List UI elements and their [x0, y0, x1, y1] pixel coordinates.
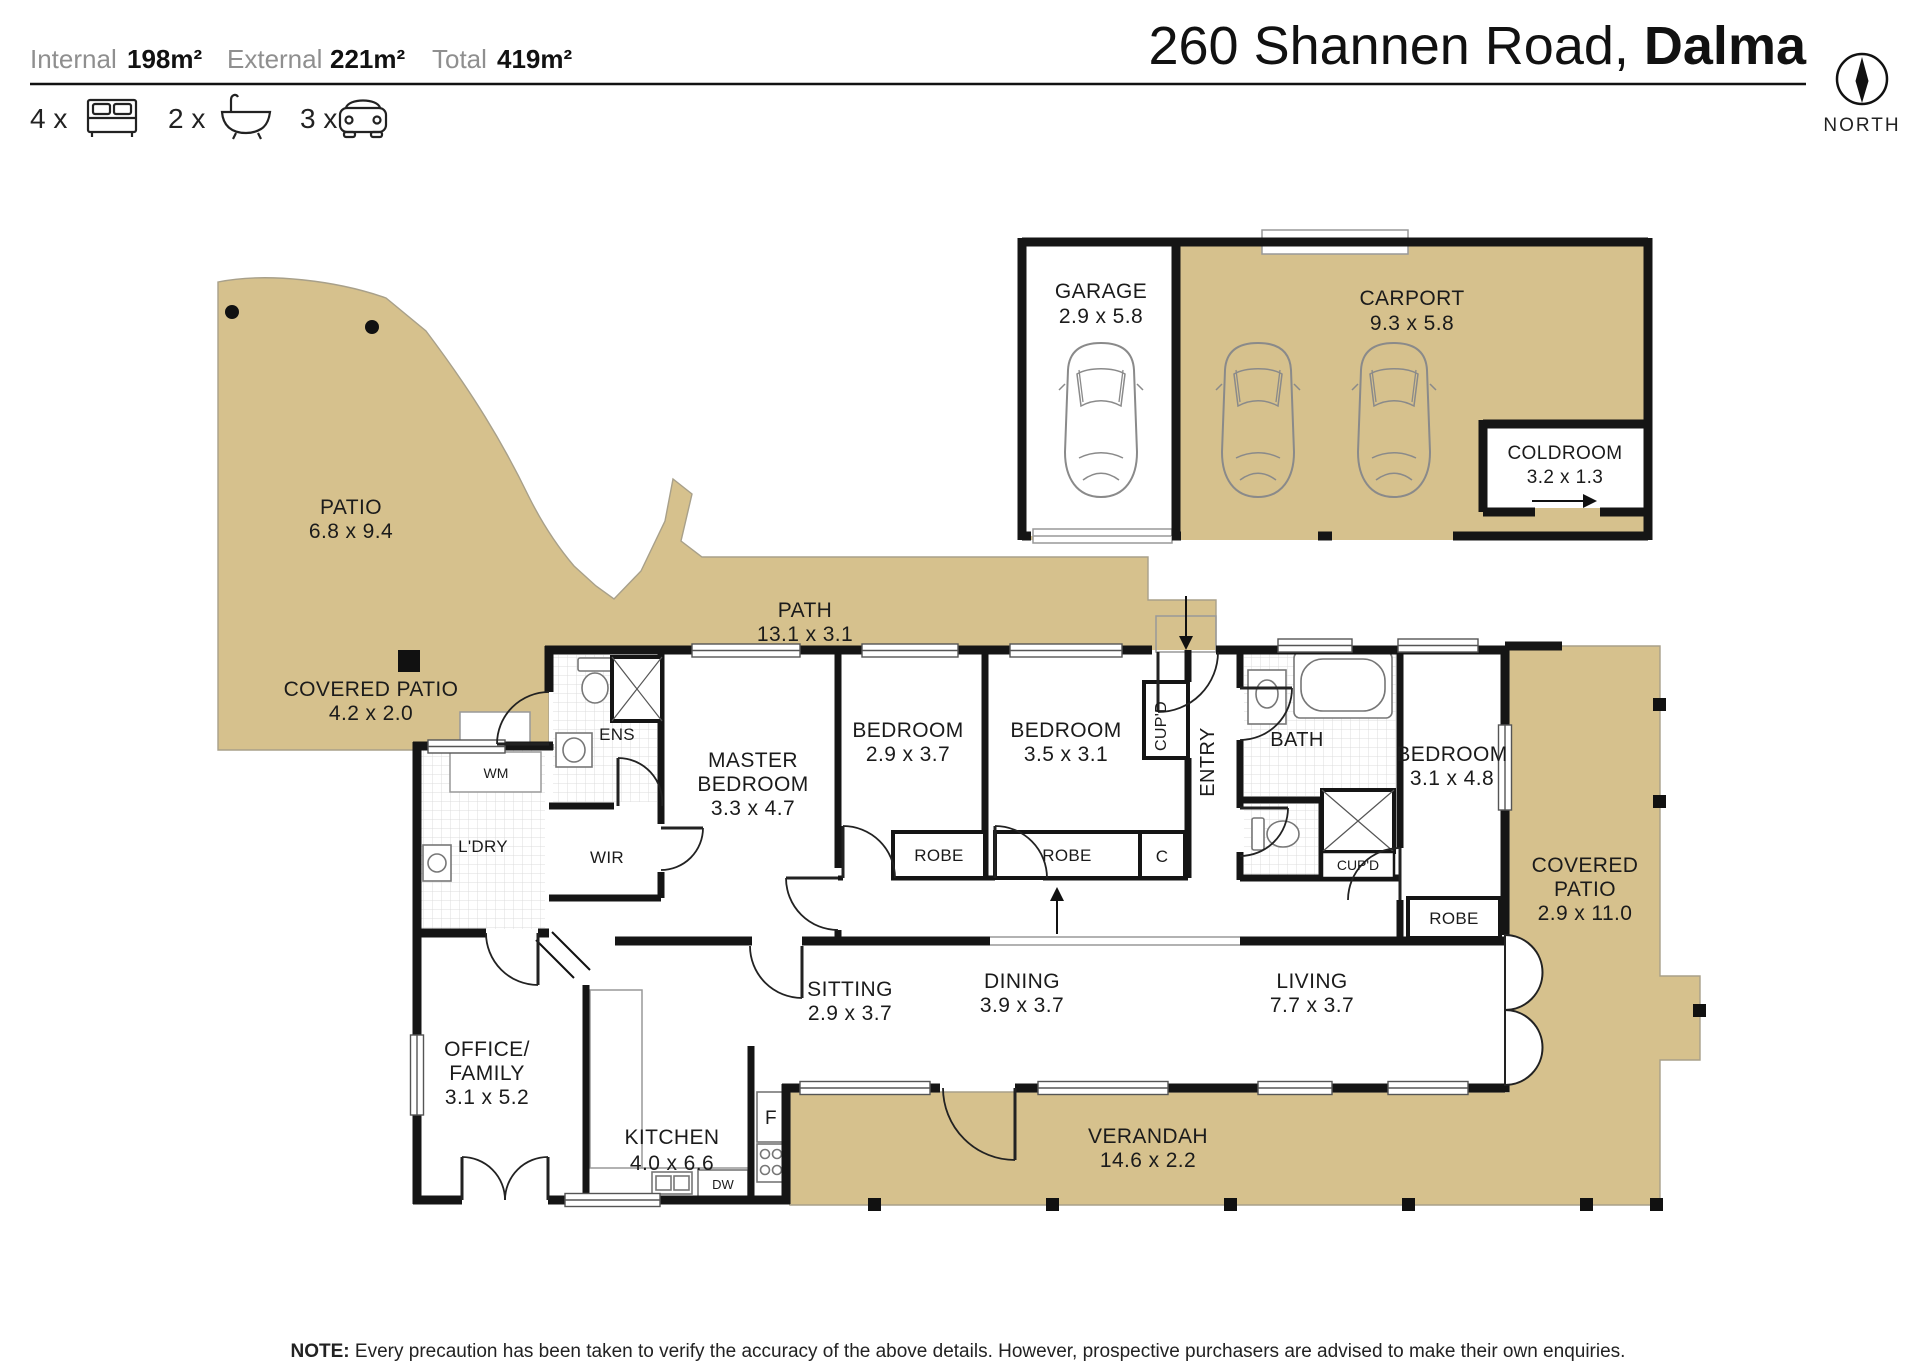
robe-bed3-label: ROBE: [1042, 846, 1091, 865]
master-bedroom-label: MASTER: [708, 749, 798, 772]
compass-needle-icon: [1856, 57, 1869, 103]
covered-patio-right-label: COVERED: [1532, 854, 1639, 877]
fridge-label: F: [765, 1108, 777, 1129]
dishwasher-label: DW: [712, 1177, 734, 1192]
bed-count: 4 x: [30, 103, 67, 134]
bath-cupboard-label: CUP'D: [1337, 857, 1379, 873]
hall-opening: [990, 936, 1240, 947]
carport-dims: 9.3 x 5.8: [1370, 312, 1454, 335]
sitting-label: SITTING: [807, 978, 893, 1001]
c-cupboard-label: C: [1156, 847, 1169, 866]
compass: NORTH: [1823, 54, 1900, 136]
covered-patio-left-dims: 4.2 x 2.0: [329, 702, 413, 725]
area-stats: Internal 198m² External 221m² Total 419m…: [30, 44, 572, 74]
sink-icon: [1248, 670, 1286, 724]
path-dims: 13.1 x 3.1: [757, 623, 853, 646]
sitting-dims: 2.9 x 3.7: [808, 1002, 892, 1025]
living-label: LIVING: [1276, 970, 1347, 993]
address: 260 Shannen Road, Dalma: [1148, 16, 1806, 76]
stove-icon: [757, 1144, 785, 1182]
covered-patio-right-label2: PATIO: [1554, 878, 1616, 901]
toilet-icon: [1252, 818, 1299, 850]
bed-icon: [88, 100, 136, 137]
bedroom4-label: BEDROOM: [1396, 743, 1507, 766]
robe-bed4-label: ROBE: [1429, 909, 1478, 928]
compass-label: NORTH: [1823, 115, 1900, 136]
master-bedroom-label2: BEDROOM: [697, 773, 808, 796]
bedroom2-label: BEDROOM: [852, 719, 963, 742]
bedroom3-label: BEDROOM: [1010, 719, 1121, 742]
covered-patio-left-label: COVERED PATIO: [284, 678, 459, 701]
floorplan-canvas: PATIO 6.8 x 9.4 PATH 13.1 x 3.1 GARAGE 2…: [0, 0, 1920, 1370]
patio-dims: 6.8 x 9.4: [309, 520, 393, 543]
dining-dims: 3.9 x 3.7: [980, 994, 1064, 1017]
robe-bed2-label: ROBE: [914, 846, 963, 865]
car-icon: [340, 101, 386, 138]
sink-icon: [556, 733, 592, 767]
wm-label: WM: [484, 765, 509, 781]
floorplan-page: PATIO 6.8 x 9.4 PATH 13.1 x 3.1 GARAGE 2…: [0, 0, 1920, 1370]
garage-dims: 2.9 x 5.8: [1059, 305, 1143, 328]
kitchen-label: KITCHEN: [625, 1126, 720, 1149]
header: Internal 198m² External 221m² Total 419m…: [30, 16, 1901, 139]
kitchen-sink-icon: [652, 1172, 692, 1194]
office-family-label: OFFICE/: [444, 1038, 530, 1061]
path-label: PATH: [778, 599, 833, 622]
office-family-label2: FAMILY: [449, 1062, 525, 1085]
entry-label: ENTRY: [1197, 727, 1219, 796]
shower-icon: [612, 657, 662, 721]
coldroom-dims: 3.2 x 1.3: [1527, 467, 1603, 488]
garage-label: GARAGE: [1055, 280, 1147, 303]
patio-label: PATIO: [320, 496, 382, 519]
hall-cupboard-label: CUP'D: [1153, 701, 1170, 751]
bathtub-icon: [1294, 652, 1392, 718]
coldroom-label: COLDROOM: [1507, 443, 1622, 464]
carport-label: CARPORT: [1359, 287, 1464, 310]
bath-count: 2 x: [168, 103, 205, 134]
garage-door: [1033, 529, 1172, 543]
wir-label: WIR: [590, 848, 624, 867]
ldry-label: L'DRY: [458, 837, 508, 856]
bedroom3-dims: 3.5 x 3.1: [1024, 743, 1108, 766]
living-dims: 7.7 x 3.7: [1270, 994, 1354, 1017]
ens-label: ENS: [599, 725, 635, 744]
bedroom2-dims: 2.9 x 3.7: [866, 743, 950, 766]
verandah-label: VERANDAH: [1088, 1125, 1208, 1148]
covered-patio-right-dims: 2.9 x 11.0: [1538, 902, 1633, 925]
master-bedroom-dims: 3.3 x 4.7: [711, 797, 795, 820]
disclaimer-note: NOTE: Every precaution has been taken to…: [291, 1341, 1626, 1362]
verandah-dims: 14.6 x 2.2: [1100, 1149, 1196, 1172]
bath-icon: [222, 95, 270, 139]
patio-post-dot: [225, 305, 239, 319]
bedroom4-dims: 3.1 x 4.8: [1410, 767, 1494, 790]
shower-icon: [1322, 790, 1394, 852]
office-family-dims: 3.1 x 5.2: [445, 1086, 529, 1109]
patio-post-dot: [365, 320, 379, 334]
car-count: 3 x: [300, 103, 337, 134]
kitchen-dims: 4.0 x 6.6: [630, 1152, 714, 1175]
laundry-tub-icon: [423, 845, 451, 881]
bath-label: BATH: [1270, 729, 1323, 751]
dining-label: DINING: [984, 970, 1060, 993]
